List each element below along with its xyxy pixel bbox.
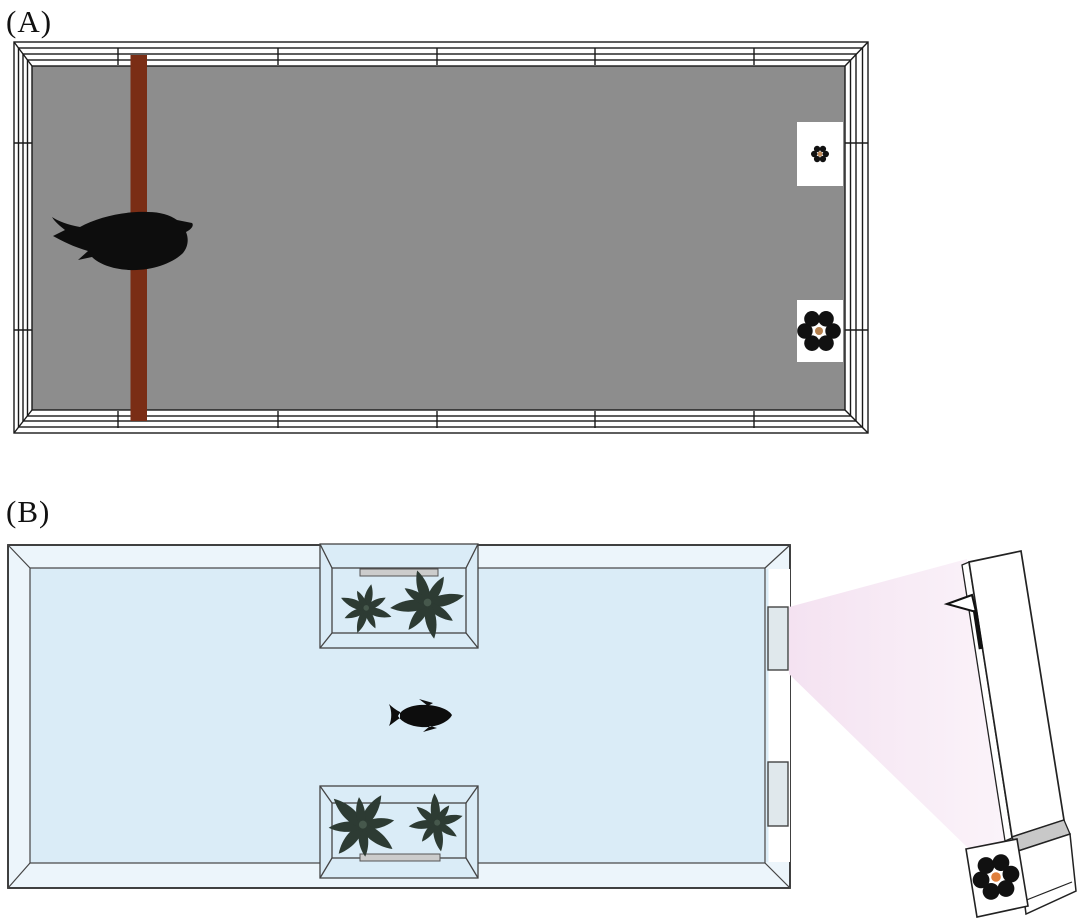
- fish-tank-diagram: [0, 470, 1080, 924]
- stimulus-card-monitor: [966, 839, 1028, 917]
- plant-compartment-top: [320, 544, 478, 650]
- aviary-diagram: [0, 0, 1080, 470]
- flower-center-small: [818, 152, 823, 157]
- viewing-window-bottom: [768, 762, 788, 826]
- compartment-bar-top: [360, 569, 438, 576]
- plant-compartment-bottom: [309, 774, 478, 878]
- flower-center-monitor: [991, 872, 1001, 882]
- flower-center-large: [815, 327, 823, 335]
- viewing-window-top: [768, 607, 788, 670]
- compartment-bar-bottom: [360, 854, 440, 861]
